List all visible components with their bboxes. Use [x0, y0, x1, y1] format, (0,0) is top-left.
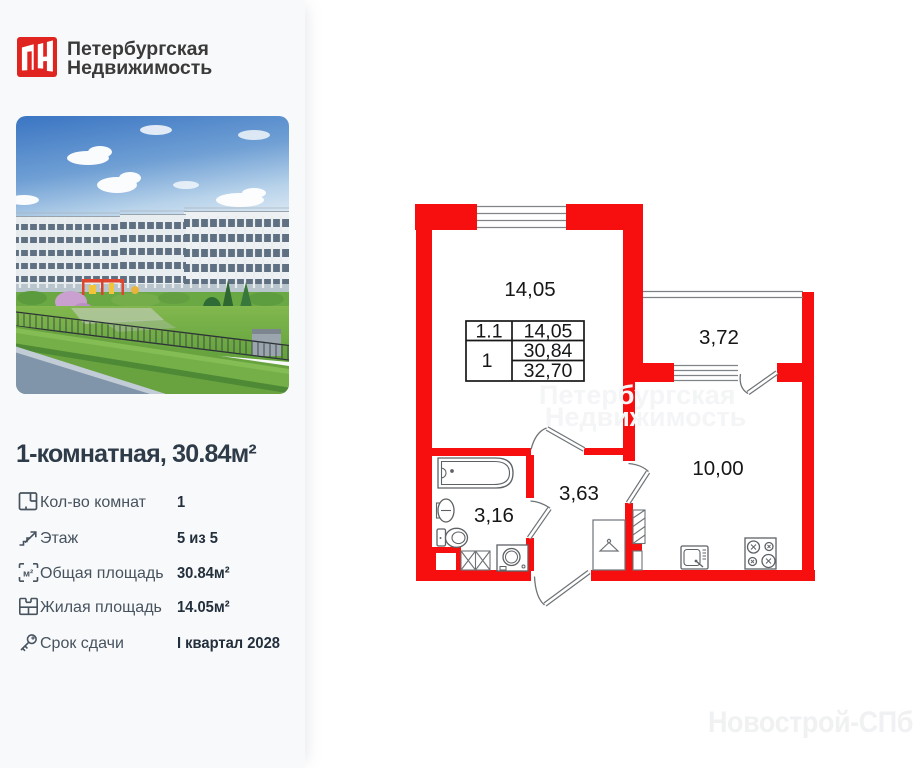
svg-text:14,05: 14,05 — [504, 278, 555, 301]
svg-text:3,63: 3,63 — [559, 482, 599, 505]
svg-text:32,70: 32,70 — [524, 360, 573, 382]
svg-text:3,16: 3,16 — [474, 504, 514, 527]
svg-text:30,84: 30,84 — [524, 340, 573, 362]
svg-text:Недвижимость: Недвижимость — [545, 402, 746, 432]
svg-text:1: 1 — [482, 350, 493, 372]
svg-text:10,00: 10,00 — [692, 457, 743, 480]
svg-text:3,72: 3,72 — [699, 326, 739, 349]
svg-text:1.1: 1.1 — [475, 321, 502, 343]
